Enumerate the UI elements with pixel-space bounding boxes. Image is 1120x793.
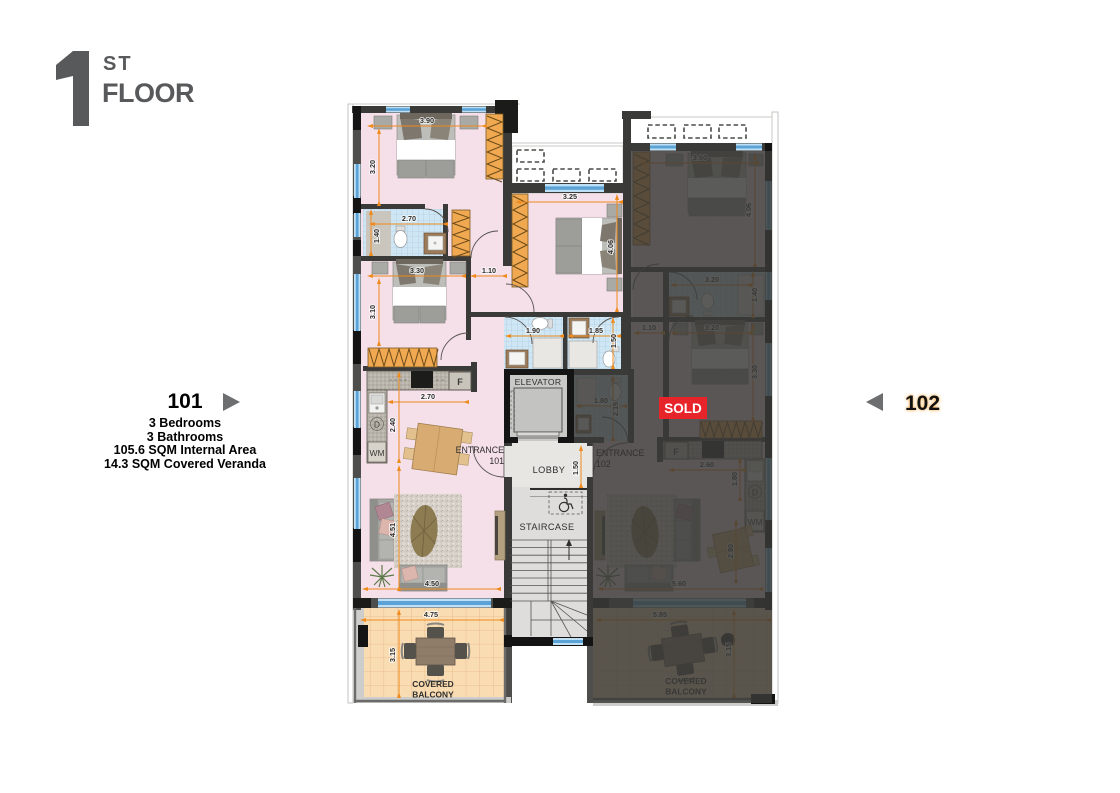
- svg-text:WM: WM: [369, 448, 384, 458]
- svg-text:F: F: [457, 377, 463, 387]
- svg-text:3.15: 3.15: [388, 648, 397, 662]
- svg-text:BALCONY: BALCONY: [412, 690, 454, 700]
- svg-text:LOBBY: LOBBY: [533, 465, 566, 475]
- svg-text:1.40: 1.40: [372, 229, 381, 243]
- svg-text:102: 102: [596, 459, 611, 469]
- svg-text:4.50: 4.50: [425, 579, 439, 588]
- svg-text:2.40: 2.40: [388, 418, 397, 432]
- svg-text:3.10: 3.10: [368, 305, 377, 319]
- svg-text:4.75: 4.75: [424, 610, 438, 619]
- svg-text:3.90: 3.90: [420, 116, 434, 125]
- svg-text:SOLD: SOLD: [664, 401, 702, 416]
- svg-text:101: 101: [489, 456, 504, 466]
- svg-text:STAIRCASE: STAIRCASE: [520, 522, 575, 532]
- svg-text:1.50: 1.50: [609, 334, 618, 348]
- svg-text:ELEVATOR: ELEVATOR: [515, 377, 562, 387]
- svg-text:2.70: 2.70: [402, 214, 416, 223]
- svg-text:ENTRANCE: ENTRANCE: [456, 445, 505, 455]
- svg-text:1.10: 1.10: [482, 266, 496, 275]
- svg-text:COVERED: COVERED: [412, 679, 453, 689]
- svg-text:3.25: 3.25: [563, 192, 577, 201]
- svg-text:ENTRANCE: ENTRANCE: [596, 448, 645, 458]
- svg-text:3.20: 3.20: [368, 160, 377, 174]
- svg-text:3.30: 3.30: [410, 266, 424, 275]
- svg-text:D: D: [374, 420, 380, 430]
- svg-text:4.06: 4.06: [606, 240, 615, 254]
- svg-text:1.90: 1.90: [526, 326, 540, 335]
- svg-text:2.70: 2.70: [421, 392, 435, 401]
- svg-text:1.85: 1.85: [589, 326, 603, 335]
- svg-text:1.50: 1.50: [571, 461, 580, 475]
- svg-text:4.51: 4.51: [388, 523, 397, 537]
